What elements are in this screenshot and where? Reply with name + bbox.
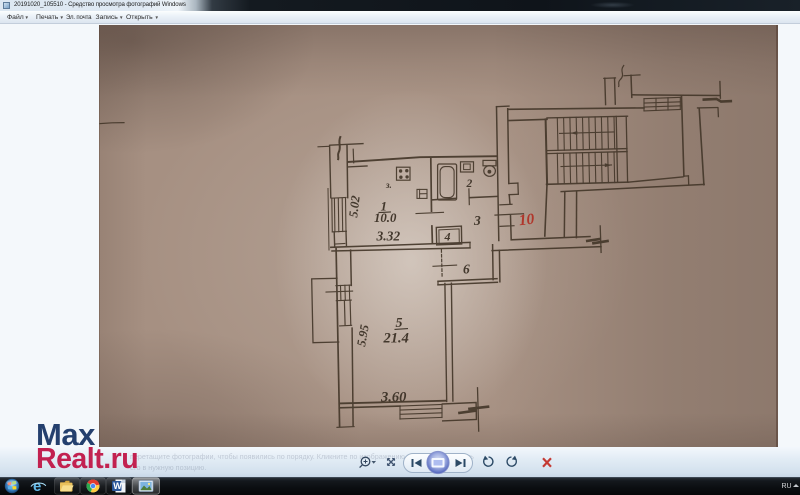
svg-text:e: e xyxy=(33,478,41,495)
svg-text:21.4: 21.4 xyxy=(383,331,409,347)
svg-text:10.0: 10.0 xyxy=(374,211,397,225)
svg-text:4: 4 xyxy=(444,230,451,244)
svg-text:3.60: 3.60 xyxy=(380,390,406,406)
svg-text:5.02: 5.02 xyxy=(346,195,363,218)
svg-text:6: 6 xyxy=(463,262,470,277)
svg-text:10: 10 xyxy=(518,211,535,230)
svg-text:W: W xyxy=(113,481,122,491)
svg-text:з.: з. xyxy=(385,180,392,190)
svg-text:3.32: 3.32 xyxy=(376,229,401,244)
svg-text:3: 3 xyxy=(473,213,481,228)
svg-text:5.95: 5.95 xyxy=(354,324,372,348)
svg-text:2: 2 xyxy=(466,178,473,190)
